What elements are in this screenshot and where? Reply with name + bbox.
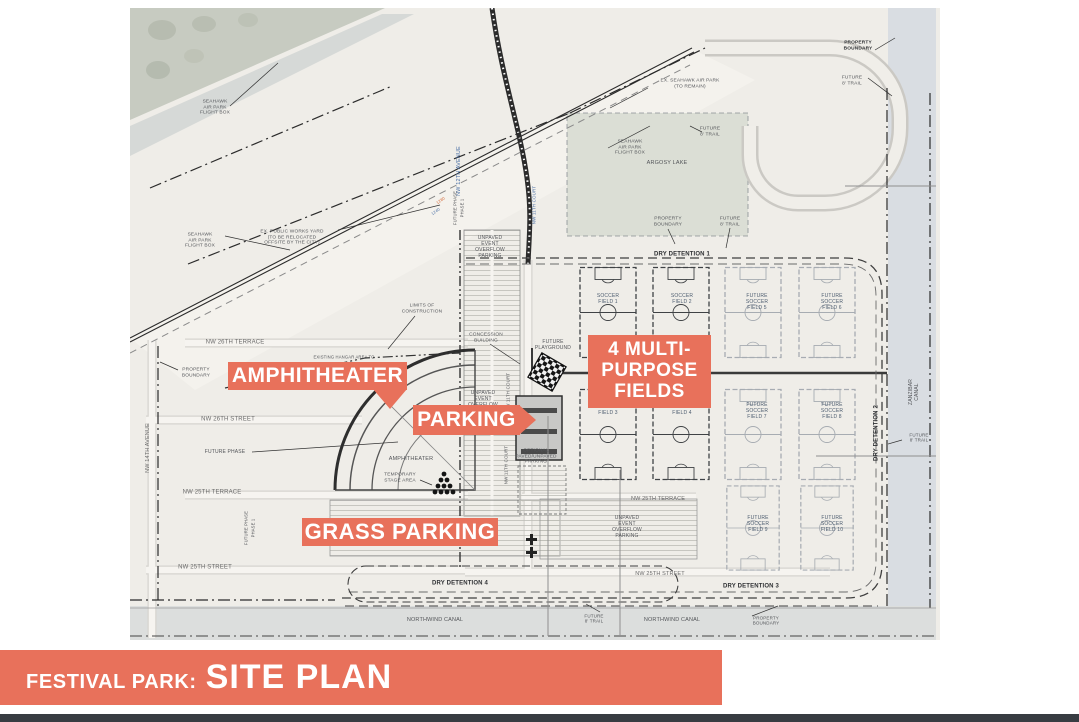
label-future-soccer-field-5: FUTURE SOCCER FIELD 5 bbox=[746, 294, 768, 312]
label-nw-25th-street-w: NW 25TH STREET bbox=[178, 564, 232, 571]
label-ex-seahawk-air-park: EX. SEAHAWK AIR PARK (TO REMAIN) bbox=[661, 78, 720, 89]
label-existing-hangar-area: EXISTING HANGAR AREA TO bbox=[313, 356, 374, 361]
label-future-phase-s: FUTURE PHASE bbox=[245, 511, 250, 545]
label-future-soccer-field-6: FUTURE SOCCER FIELD 6 bbox=[821, 294, 843, 312]
callout-amphitheater-label: AMPHITHEATER bbox=[232, 364, 403, 388]
label-northwind-canal-w: NORTHWIND CANAL bbox=[407, 617, 463, 623]
label-property-boundary-w: PROPERTY BOUNDARY bbox=[182, 367, 210, 378]
label-seahawk-flight-box-e: SEAHAWK AIR PARK FLIGHT BOX bbox=[615, 140, 645, 157]
slide-title-text: FESTIVAL PARK:SITE PLAN bbox=[26, 658, 392, 697]
label-nw-11th-court-n: NW 11TH COURT bbox=[531, 186, 536, 225]
label-nw-26th-terrace: NW 26TH TERRACE bbox=[206, 339, 265, 346]
label-road-station-1240: 1240 bbox=[431, 207, 441, 216]
label-soccer-field-2: SOCCER FIELD 2 bbox=[671, 294, 693, 306]
label-dry-detention-2: DRY DETENTION 2 bbox=[873, 405, 880, 461]
label-property-boundary-s: PROPERTY BOUNDARY bbox=[753, 616, 780, 627]
slide-title-bar: FESTIVAL PARK:SITE PLAN bbox=[0, 650, 722, 705]
label-limits-of-construction: LIMITS OF CONSTRUCTION bbox=[402, 303, 442, 314]
label-optional-parking: OPTIONAL PAVED/UNPAVED PARKING bbox=[515, 449, 556, 466]
label-amphitheater-small: AMPHITHEATER bbox=[389, 456, 433, 462]
label-nw-25th-terrace-w: NW 25TH TERRACE bbox=[183, 489, 242, 496]
slide-title-prefix: FESTIVAL PARK: bbox=[26, 671, 197, 693]
slide-title: SITE PLAN bbox=[206, 658, 393, 696]
label-nw-14th-avenue: NW 14TH AVENUE bbox=[145, 423, 151, 473]
label-public-works-yard: EX. PUBLIC WORKS YARD (TO BE RELOCATED O… bbox=[260, 230, 323, 247]
label-zanzibar-canal: ZANZIBAR CANAL bbox=[909, 379, 921, 405]
label-future-soccer-field-9: FUTURE SOCCER FIELD 9 bbox=[747, 516, 769, 534]
label-nw-11th-court-s: NW 11TH COURT bbox=[503, 446, 508, 485]
callout-multi-purpose-fields: 4 MULTI- PURPOSE FIELDS bbox=[588, 335, 711, 408]
label-dry-detention-3: DRY DETENTION 3 bbox=[723, 583, 779, 590]
callout-multi-line-3: FIELDS bbox=[614, 382, 685, 403]
label-unpaved-overflow-n: UNPAVED EVENT OVERFLOW PARKING bbox=[475, 236, 505, 260]
label-road-station-1280: 1280 bbox=[436, 196, 446, 205]
site-plan-map: SEAHAWK AIR PARK FLIGHT BOXSEAHAWK AIR P… bbox=[130, 8, 940, 640]
callout-amphitheater: AMPHITHEATER bbox=[228, 362, 407, 390]
callout-multi-line-2: PURPOSE bbox=[601, 361, 697, 382]
label-soccer-field-1: SOCCER FIELD 1 bbox=[597, 294, 619, 306]
label-dry-detention-4: DRY DETENTION 4 bbox=[432, 580, 488, 587]
label-future-playground: FUTURE PLAYGROUND bbox=[535, 340, 571, 352]
label-seahawk-flight-box-nw: SEAHAWK AIR PARK FLIGHT BOX bbox=[200, 100, 230, 117]
label-property-boundary-lake-s: PROPERTY BOUNDARY bbox=[654, 216, 682, 227]
label-concession-building: CONCESSION BUILDING bbox=[469, 332, 503, 343]
callout-parking-label: PARKING bbox=[417, 408, 516, 432]
slide-bottom-strip bbox=[0, 714, 1079, 722]
label-dry-detention-1: DRY DETENTION 1 bbox=[654, 251, 710, 258]
map-label-layer: SEAHAWK AIR PARK FLIGHT BOXSEAHAWK AIR P… bbox=[130, 8, 940, 640]
label-argosy-lake: ARGOSY LAKE bbox=[647, 160, 688, 166]
label-temporary-stage-area: TEMPORARY STAGE AREA bbox=[384, 472, 416, 483]
label-future-soccer-field-8: FUTURE SOCCER FIELD 8 bbox=[821, 403, 843, 421]
label-future-trail-lake-n: FUTURE 8' TRAIL bbox=[700, 126, 720, 137]
label-future-trail-e: FUTURE 8' TRAIL bbox=[909, 433, 928, 444]
label-nw-26th-street: NW 26TH STREET bbox=[201, 416, 255, 423]
label-phase-1-line-n: PHASE 1 bbox=[461, 199, 466, 218]
label-future-phase-w: FUTURE PHASE bbox=[205, 450, 245, 456]
label-future-soccer-field-7: FUTURE SOCCER FIELD 7 bbox=[746, 403, 768, 421]
label-seahawk-flight-box-sw: SEAHAWK AIR PARK FLIGHT BOX bbox=[185, 233, 215, 250]
label-unpaved-overflow-s: UNPAVED EVENT OVERFLOW PARKING bbox=[612, 516, 642, 540]
label-northwind-canal-e: NORTHWIND CANAL bbox=[644, 617, 700, 623]
label-nw-25th-street-e: NW 25TH STREET bbox=[635, 571, 684, 577]
label-future-trail-lake-s: FUTURE 8' TRAIL bbox=[720, 216, 740, 227]
label-future-soccer-field-10: FUTURE SOCCER FIELD 10 bbox=[821, 516, 843, 534]
label-property-boundary-ne: PROPERTY BOUNDARY bbox=[844, 40, 873, 51]
callout-parking: PARKING bbox=[413, 405, 520, 435]
label-future-trail-s: FUTURE 8' TRAIL bbox=[584, 614, 603, 625]
label-future-phase-line-n: FUTURE PHASE bbox=[454, 191, 459, 225]
callout-multi-line-1: 4 MULTI- bbox=[608, 340, 691, 361]
callout-parking-pointer bbox=[519, 405, 536, 435]
callout-grass-parking-label: GRASS PARKING bbox=[305, 519, 496, 545]
label-future-trail-ne: FUTURE 8' TRAIL bbox=[842, 75, 862, 86]
label-nw-12th-avenue: NW 12TH AVENUE bbox=[456, 146, 462, 196]
label-nw-25th-terrace-e: NW 25TH TERRACE bbox=[631, 496, 685, 502]
callout-grass-parking: GRASS PARKING bbox=[302, 518, 498, 546]
callout-amphitheater-pointer bbox=[373, 389, 407, 409]
label-phase-1-s: PHASE 1 bbox=[252, 519, 257, 538]
